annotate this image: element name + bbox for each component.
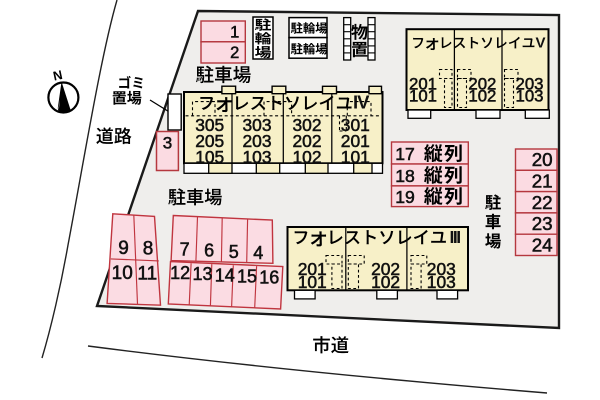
svg-text:7: 7 [180, 239, 190, 259]
svg-text:101: 101 [298, 272, 327, 292]
svg-text:24: 24 [532, 234, 553, 255]
svg-text:101: 101 [409, 86, 437, 105]
svg-text:2: 2 [230, 44, 239, 62]
svg-text:III: III [450, 227, 461, 247]
svg-text:21: 21 [532, 171, 553, 192]
svg-text:6: 6 [204, 241, 214, 261]
svg-text:5: 5 [229, 242, 239, 262]
svg-text:103: 103 [242, 147, 271, 167]
svg-text:16: 16 [259, 267, 279, 287]
svg-text:23: 23 [532, 213, 553, 234]
svg-text:101: 101 [341, 147, 370, 167]
svg-text:13: 13 [192, 264, 212, 284]
svg-text:9: 9 [118, 238, 129, 259]
svg-text:10: 10 [112, 263, 133, 284]
svg-text:103: 103 [516, 86, 544, 105]
svg-text:1: 1 [230, 24, 239, 42]
svg-text:11: 11 [137, 263, 157, 284]
svg-text:103: 103 [427, 272, 456, 292]
svg-text:20: 20 [532, 149, 553, 170]
svg-text:19: 19 [395, 187, 415, 207]
svg-text:18: 18 [395, 166, 415, 186]
svg-text:8: 8 [143, 239, 154, 260]
svg-text:4: 4 [253, 243, 263, 263]
svg-text:12: 12 [170, 263, 190, 283]
svg-text:3: 3 [163, 134, 172, 153]
svg-text:17: 17 [395, 144, 415, 164]
svg-text:105: 105 [195, 147, 224, 167]
svg-text:22: 22 [532, 192, 553, 213]
svg-text:102: 102 [371, 272, 400, 292]
svg-text:102: 102 [292, 147, 321, 167]
svg-text:15: 15 [237, 266, 257, 286]
svg-text:102: 102 [468, 86, 496, 105]
svg-text:14: 14 [215, 265, 235, 285]
svg-text:V: V [536, 35, 546, 52]
